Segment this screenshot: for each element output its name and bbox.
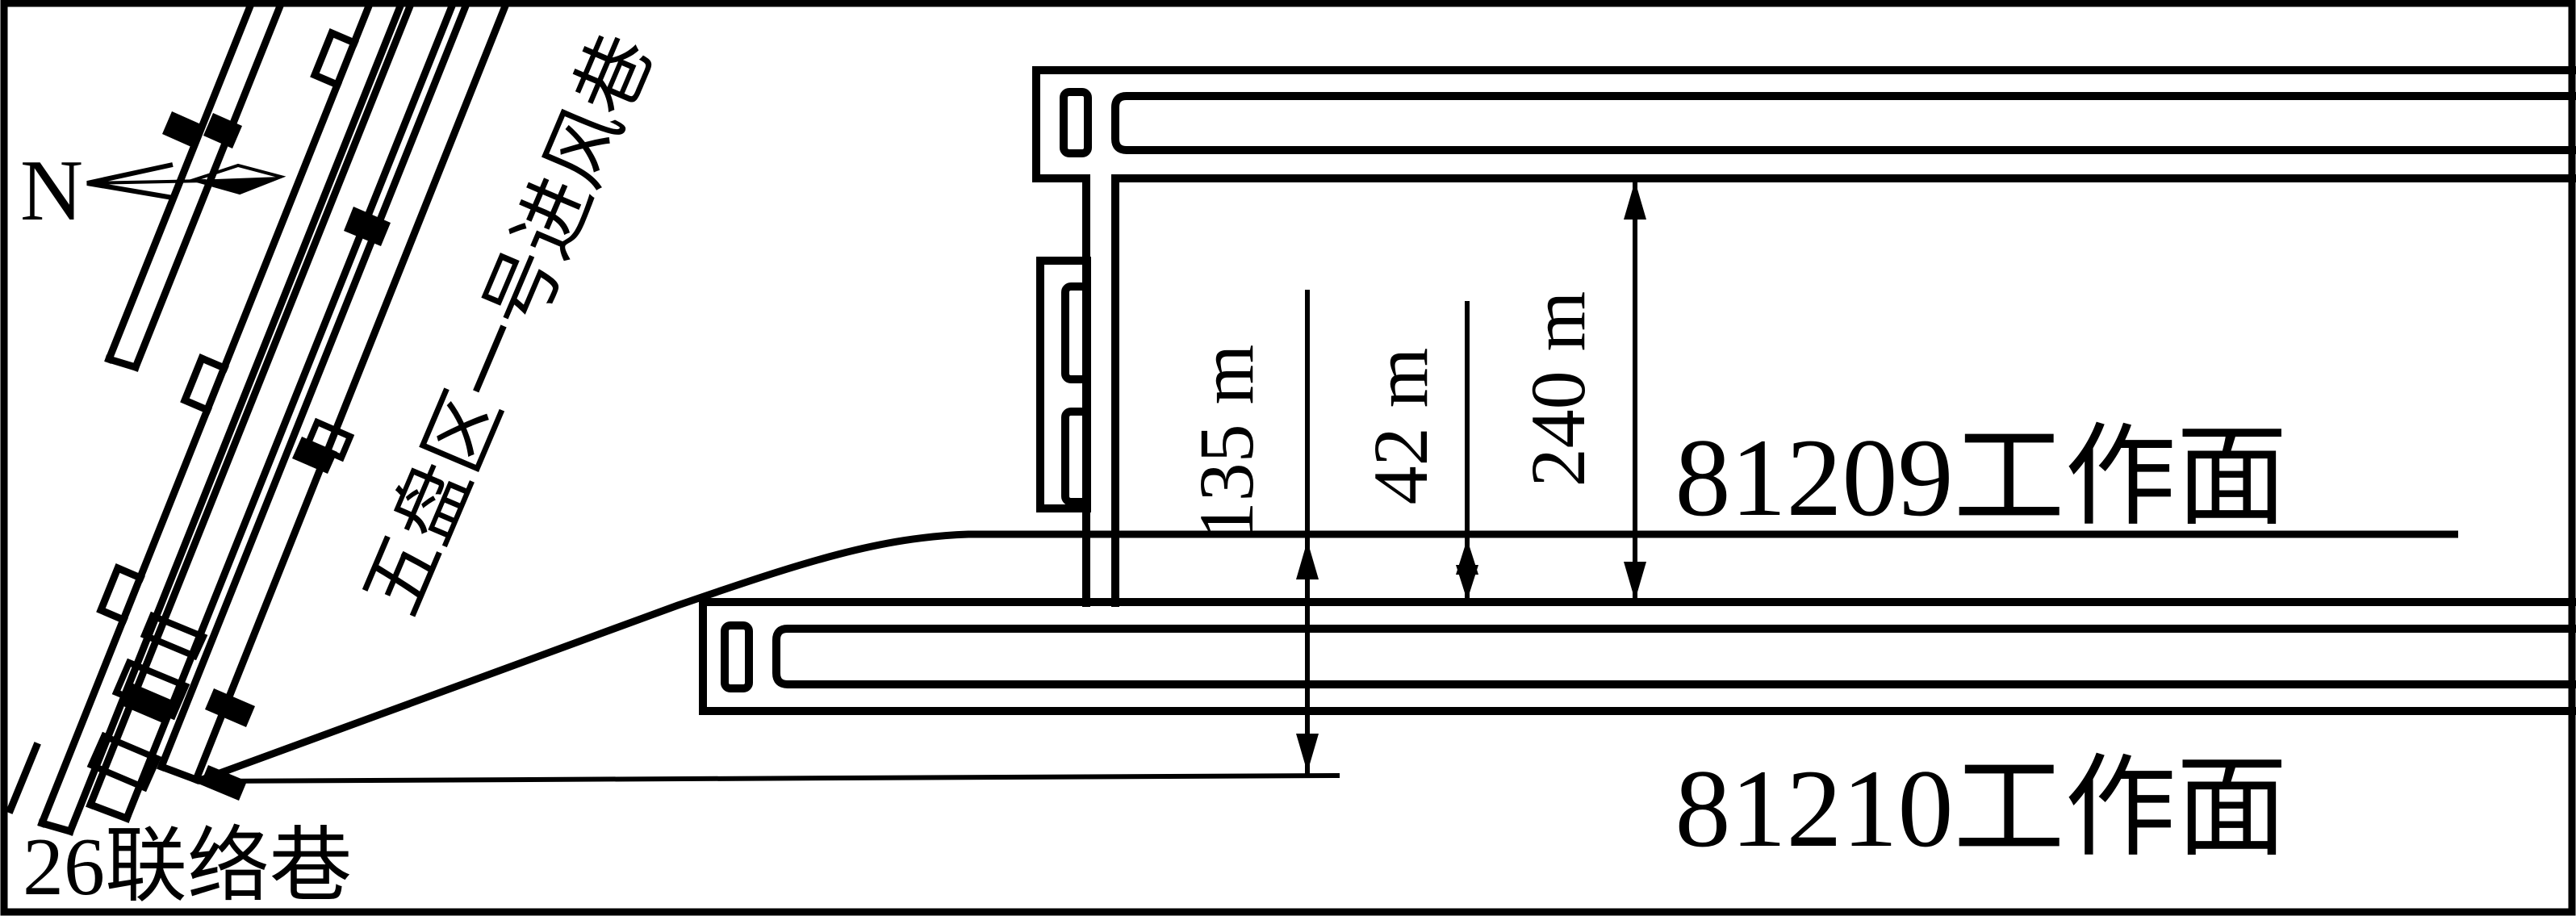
north-label: N	[20, 143, 83, 239]
diagram-canvas: N	[0, 0, 2576, 916]
connection-roadway-label: 26联络巷	[23, 822, 352, 913]
dimension-135m-label: 135 m	[1183, 345, 1269, 541]
dimension-42m-label: 42 m	[1357, 348, 1444, 505]
face-81209-label: 81209工作面	[1675, 416, 2287, 539]
dimension-240m-label: 240 m	[1515, 291, 1601, 487]
face-81210-label: 81210工作面	[1675, 747, 2287, 870]
mine-plan-diagram: N	[0, 0, 2576, 916]
